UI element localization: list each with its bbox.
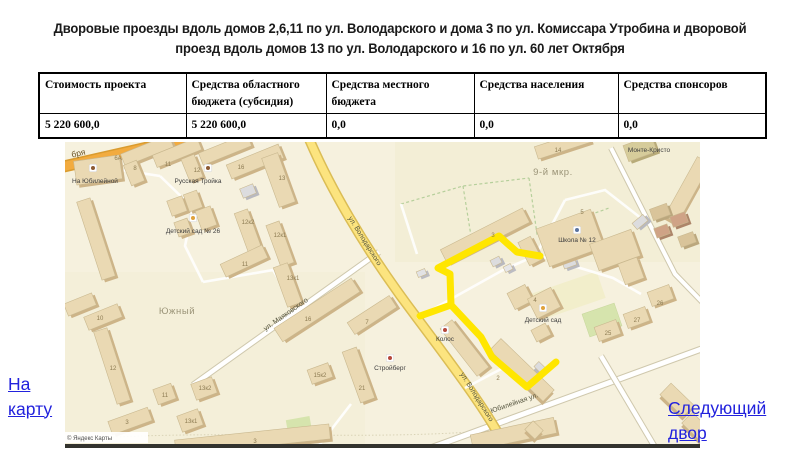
shop-icon xyxy=(441,326,449,334)
building-number: 11 xyxy=(162,393,169,399)
map-label: Детский сад № 26 xyxy=(166,227,221,235)
cell-regional-budget: 5 220 600,0 xyxy=(186,114,326,138)
col-header-sponsor-funds: Средства спонсоров xyxy=(618,73,766,114)
building-number: 12к1 xyxy=(274,233,287,239)
building-number: 21 xyxy=(359,386,366,392)
school-icon xyxy=(573,226,581,234)
map-label: Колос xyxy=(436,336,455,343)
budget-table: Стоимость проекта Средства областного бю… xyxy=(38,72,767,139)
map-image: бряул. Володарскогоул. Володарскогоул. М… xyxy=(65,142,700,448)
building-number: 14 xyxy=(555,148,562,154)
building-number: 16 xyxy=(305,317,312,323)
cell-sponsor-funds: 0,0 xyxy=(618,114,766,138)
kindergarten-icon xyxy=(189,214,197,222)
building-number: 10 xyxy=(97,316,104,322)
cell-citizens-funds: 0,0 xyxy=(474,114,618,138)
table-header-row: Стоимость проекта Средства областного бю… xyxy=(39,73,766,114)
building-number: 12 xyxy=(194,168,201,174)
table-data-row: 5 220 600,0 5 220 600,0 0,0 0,0 0,0 xyxy=(39,114,766,138)
cafe-icon xyxy=(89,164,97,172)
building-number: 25 xyxy=(605,331,612,337)
building-number: 12к2 xyxy=(242,220,255,226)
map-label: Детский сад xyxy=(525,316,562,324)
map-label: Южный xyxy=(159,306,195,317)
building-number: 26 xyxy=(657,301,664,307)
map-label: Стройберг xyxy=(374,364,406,372)
building-number: 11 xyxy=(165,162,172,168)
map-attribution-text: © Яндекс Карты xyxy=(67,435,112,442)
presentation-slide: Дворовые проезды вдоль домов 2,6,11 по у… xyxy=(0,0,800,450)
col-header-regional-budget: Средства областного бюджета (субсидия) xyxy=(186,73,326,114)
building-number: 13к1 xyxy=(287,276,300,282)
building-number: 13к1 xyxy=(185,419,198,425)
building-number: 15к2 xyxy=(314,373,327,379)
map-label: 9-й мкр. xyxy=(533,167,573,178)
map-label: Школа № 12 xyxy=(558,237,596,244)
map-label: Монте-Кристо xyxy=(628,147,671,154)
kindergarten-icon xyxy=(539,304,547,312)
shop-icon xyxy=(386,354,394,362)
col-header-local-budget: Средства местного бюджета xyxy=(326,73,474,114)
map-label: На Юбилейной xyxy=(72,177,118,185)
map-link[interactable]: На карту xyxy=(8,372,70,421)
map-attribution: © Яндекс Карты xyxy=(65,432,148,443)
cell-project-cost: 5 220 600,0 xyxy=(39,114,186,138)
building-number: 13к2 xyxy=(199,386,212,392)
building-number: 6А xyxy=(114,156,121,162)
yandex-map: бряул. Володарскогоул. Володарскогоул. М… xyxy=(65,142,700,448)
page-title: Дворовые проезды вдоль домов 2,6,11 по у… xyxy=(54,18,747,59)
cell-local-budget: 0,0 xyxy=(326,114,474,138)
col-header-project-cost: Стоимость проекта xyxy=(39,73,186,114)
next-court-link[interactable]: Следующий двор xyxy=(668,396,780,445)
map-label: Русская Тройка xyxy=(174,177,221,185)
building-number: 11 xyxy=(242,262,249,268)
building-number: 16 xyxy=(238,165,245,171)
map-bottom-strip xyxy=(65,444,700,448)
cafe-icon xyxy=(204,164,212,172)
building-number: 12 xyxy=(110,366,117,372)
building-number: 13 xyxy=(279,176,286,182)
col-header-citizens-funds: Средства населения xyxy=(474,73,618,114)
building-number: 27 xyxy=(634,318,641,324)
